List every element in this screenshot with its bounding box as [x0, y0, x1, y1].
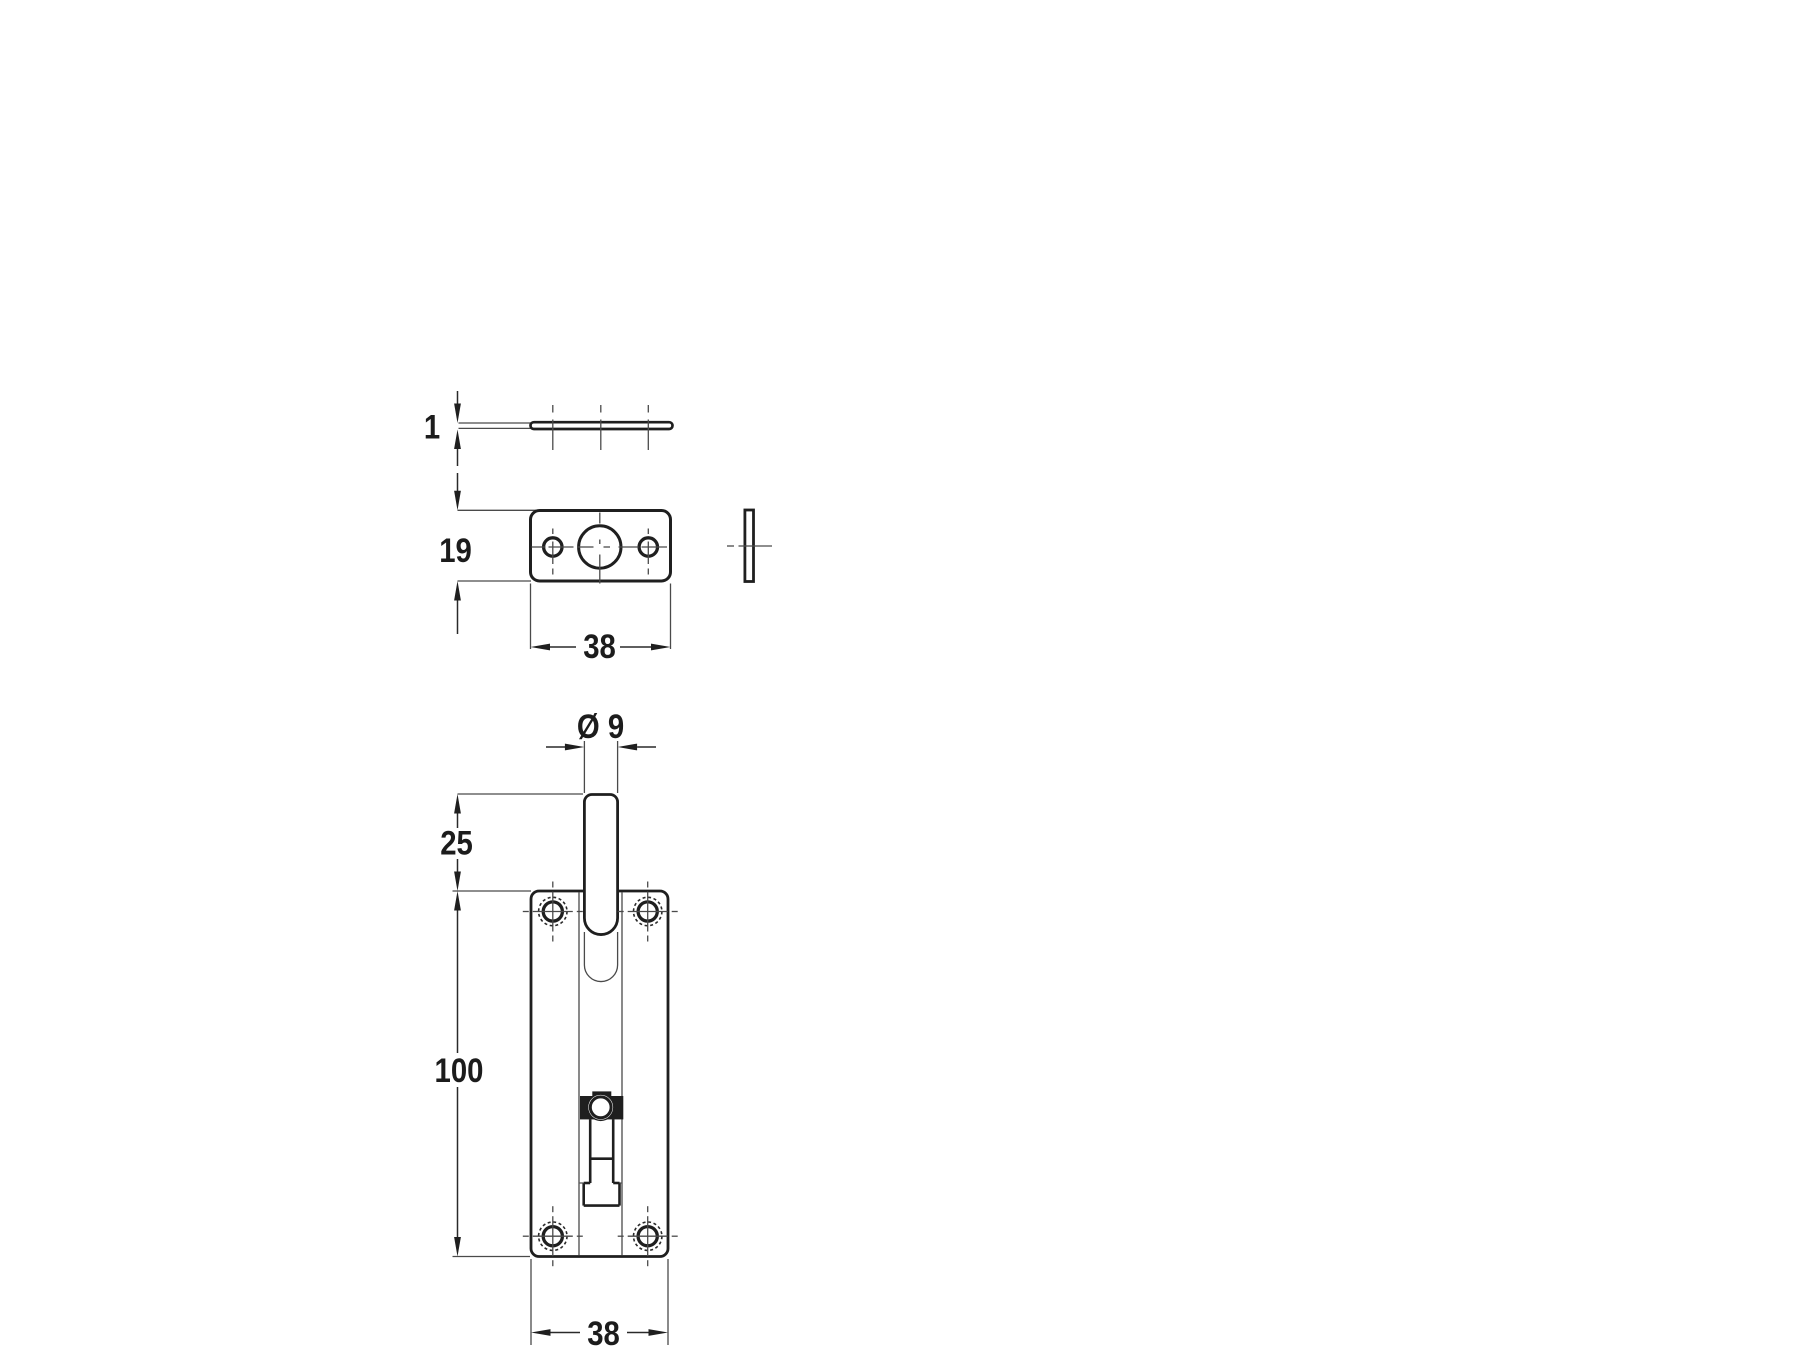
svg-text:100: 100: [435, 1051, 484, 1090]
svg-text:Ø 9: Ø 9: [577, 707, 624, 746]
svg-text:38: 38: [583, 627, 616, 666]
svg-text:19: 19: [439, 531, 472, 570]
svg-text:1: 1: [424, 407, 440, 446]
svg-text:25: 25: [440, 823, 473, 862]
svg-text:38: 38: [587, 1314, 620, 1350]
